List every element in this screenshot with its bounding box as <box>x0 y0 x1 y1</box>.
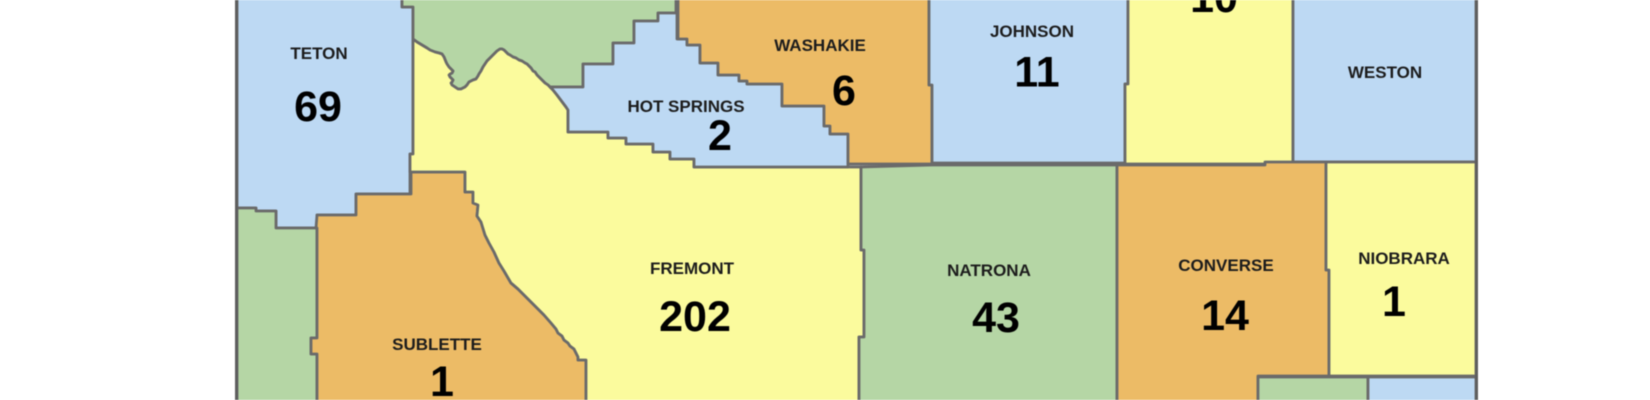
svg-text:11: 11 <box>1014 49 1059 97</box>
svg-text:14: 14 <box>1201 292 1249 340</box>
svg-text:202: 202 <box>659 293 731 341</box>
svg-text:NATRONA: NATRONA <box>947 261 1031 280</box>
svg-text:1: 1 <box>430 358 454 400</box>
svg-text:TETON: TETON <box>290 44 347 63</box>
svg-text:FREMONT: FREMONT <box>650 259 735 278</box>
svg-text:69: 69 <box>294 83 342 131</box>
svg-text:10: 10 <box>1190 0 1238 22</box>
svg-text:1: 1 <box>1382 278 1406 326</box>
svg-text:2: 2 <box>708 112 732 160</box>
svg-text:SUBLETTE: SUBLETTE <box>392 335 482 354</box>
svg-text:6: 6 <box>832 67 856 115</box>
svg-text:JOHNSON: JOHNSON <box>990 22 1074 41</box>
svg-text:NIOBRARA: NIOBRARA <box>1358 249 1450 268</box>
svg-text:CONVERSE: CONVERSE <box>1178 256 1273 275</box>
svg-text:WASHAKIE: WASHAKIE <box>774 36 866 55</box>
svg-text:WESTON: WESTON <box>1348 63 1422 82</box>
svg-text:43: 43 <box>972 294 1020 342</box>
